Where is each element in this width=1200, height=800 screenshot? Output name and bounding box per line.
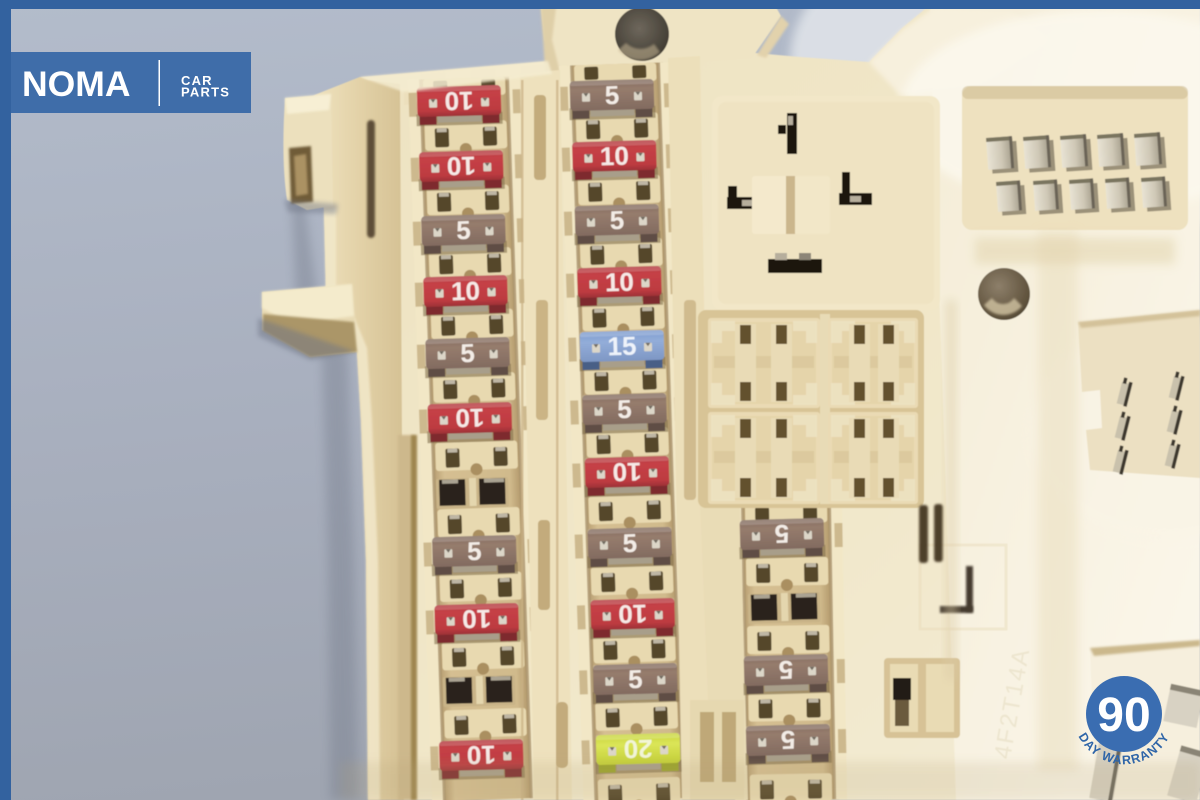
svg-text:5: 5 [456, 215, 471, 245]
svg-text:5: 5 [467, 536, 482, 566]
svg-text:15: 15 [607, 331, 637, 362]
svg-text:5: 5 [460, 338, 475, 368]
svg-text:10: 10 [451, 276, 481, 307]
svg-text:10: 10 [600, 141, 630, 172]
svg-text:20: 20 [623, 734, 653, 765]
svg-text:PARTS: PARTS [181, 85, 230, 100]
svg-text:10: 10 [618, 599, 648, 630]
svg-text:10: 10 [444, 86, 474, 117]
svg-text:5: 5 [628, 664, 643, 694]
svg-text:5: 5 [780, 725, 795, 755]
svg-text:5: 5 [604, 80, 619, 110]
svg-text:5: 5 [774, 519, 789, 549]
svg-text:10: 10 [455, 403, 485, 434]
svg-text:5: 5 [609, 205, 624, 235]
svg-text:10: 10 [462, 604, 492, 635]
svg-text:NOMA: NOMA [22, 64, 130, 104]
svg-text:5: 5 [617, 394, 632, 424]
svg-text:10: 10 [612, 457, 642, 488]
svg-text:90: 90 [1097, 689, 1150, 742]
svg-text:10: 10 [605, 267, 635, 298]
svg-text:5: 5 [622, 528, 637, 558]
svg-text:10: 10 [446, 151, 476, 182]
svg-text:5: 5 [778, 655, 793, 685]
